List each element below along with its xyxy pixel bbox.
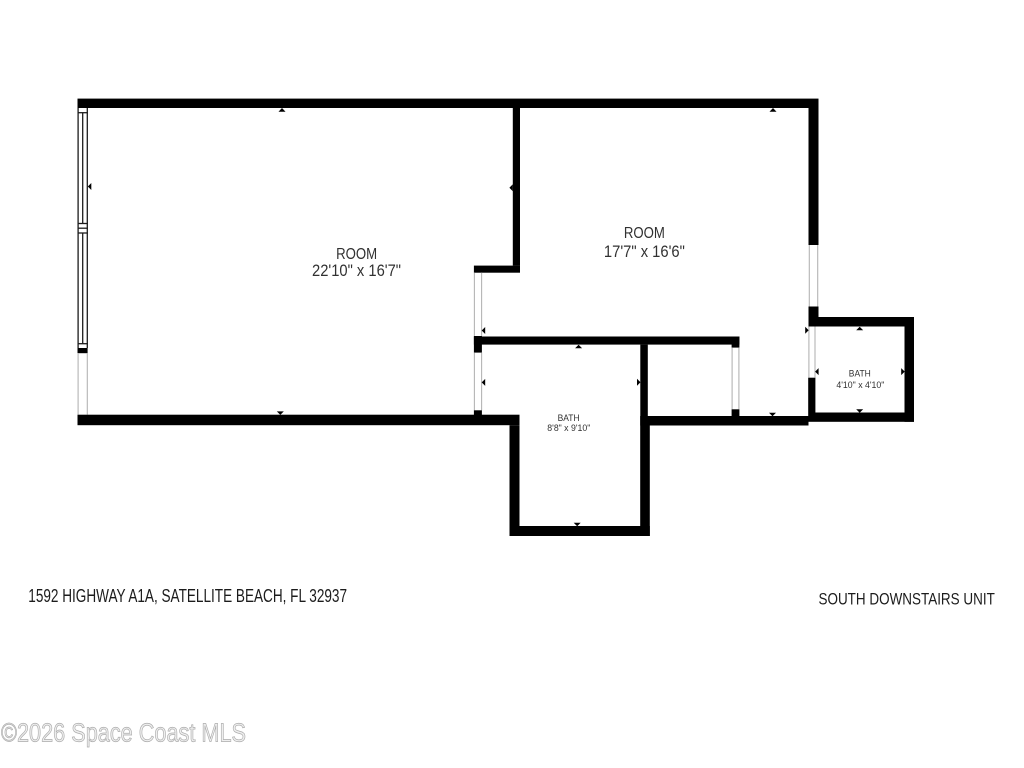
svg-text:BATH: BATH <box>849 369 871 380</box>
svg-text:1592 HIGHWAY A1A, SATELLITE BE: 1592 HIGHWAY A1A, SATELLITE BEACH, FL 32… <box>28 586 347 606</box>
svg-text:SOUTH DOWNSTAIRS UNIT: SOUTH DOWNSTAIRS UNIT <box>819 590 995 609</box>
svg-text:17'7" x 16'6": 17'7" x 16'6" <box>604 243 685 261</box>
svg-text:ROOM: ROOM <box>336 246 377 263</box>
svg-text:ROOM: ROOM <box>624 225 665 242</box>
svg-text:BATH: BATH <box>558 413 580 423</box>
svg-text:©2026 Space Coast MLS: ©2026 Space Coast MLS <box>1 717 246 747</box>
svg-text:4'10" x 4'10": 4'10" x 4'10" <box>836 380 884 391</box>
svg-text:8'8" x 9'10": 8'8" x 9'10" <box>547 423 590 433</box>
svg-text:22'10" x 16'7": 22'10" x 16'7" <box>312 262 401 280</box>
